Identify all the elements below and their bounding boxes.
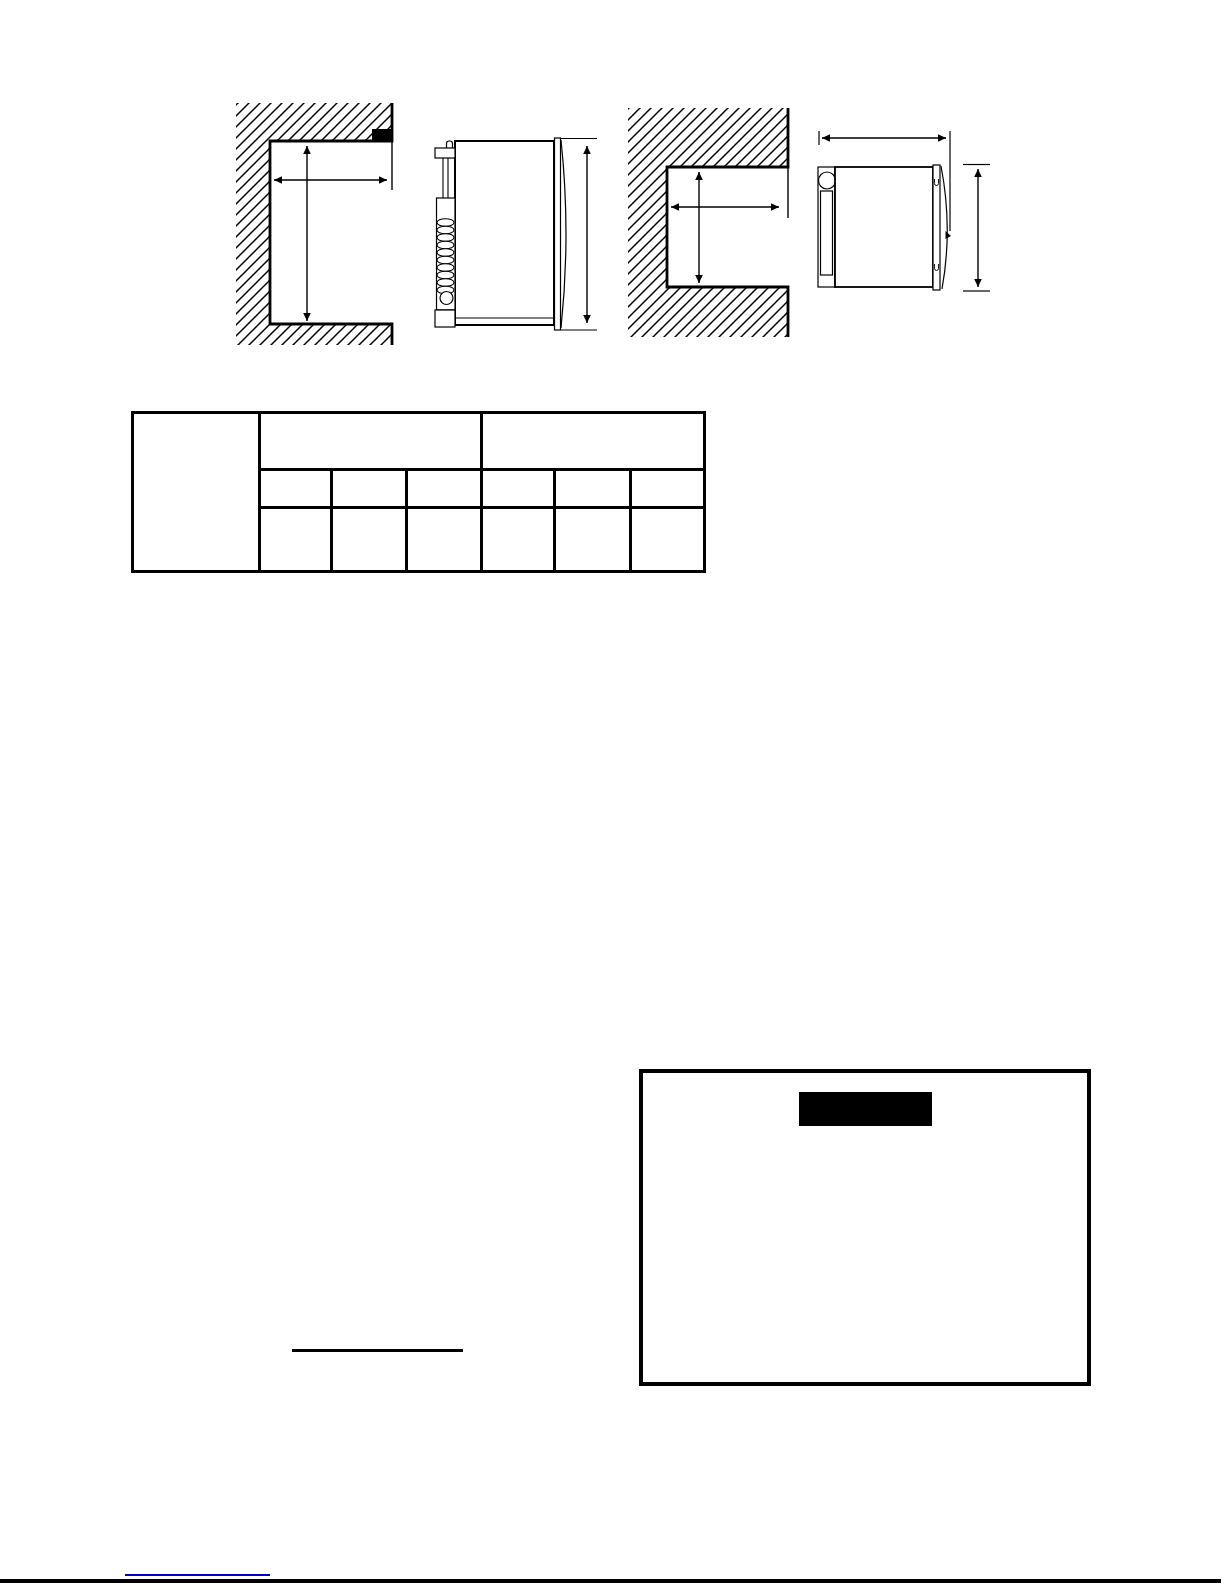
table-column-header — [631, 470, 705, 508]
appliance-body — [455, 141, 554, 325]
table-data-cell — [260, 508, 332, 572]
figure-wall-recess-elevation — [236, 103, 393, 345]
table-column-header — [332, 470, 407, 508]
figure-appliance-top-view — [818, 131, 990, 291]
installation-clearance-figures — [0, 0, 1225, 370]
underlined-phrase-rule — [292, 1349, 463, 1352]
rear-roller — [440, 292, 453, 305]
hinge-barrel — [819, 172, 836, 189]
document-page — [0, 0, 1225, 1585]
table-group-header — [482, 413, 705, 470]
table-column-header — [407, 470, 482, 508]
notice-box — [639, 1069, 1091, 1386]
wall-section-hatch — [628, 108, 788, 337]
door-panel — [933, 165, 940, 290]
table-data-cell — [482, 508, 555, 572]
rear-foot — [435, 310, 455, 327]
table-column-header — [482, 470, 555, 508]
door-curve — [561, 140, 566, 328]
table-data-cell — [631, 508, 705, 572]
table-data-cell — [332, 508, 407, 572]
footer-divider — [0, 1579, 1221, 1583]
table-group-header — [260, 413, 482, 470]
figure-wall-recess-plan — [628, 108, 788, 337]
table-column-header — [555, 470, 631, 508]
clearance-table — [131, 411, 706, 573]
notice-body-text — [657, 1137, 1073, 1372]
door-curve — [941, 166, 947, 289]
appliance-body — [835, 167, 933, 287]
door-panel — [555, 138, 561, 330]
side-channel-slot — [821, 191, 833, 275]
notice-banner — [799, 1092, 932, 1126]
table-data-cell — [407, 508, 482, 572]
footer-link[interactable] — [125, 1565, 270, 1576]
recess-corner-block — [372, 129, 393, 142]
door-latch — [946, 231, 952, 239]
table-data-cell — [555, 508, 631, 572]
table-corner-cell — [133, 413, 260, 572]
wall-section-hatch — [236, 103, 392, 345]
table-column-header — [260, 470, 332, 508]
figure-appliance-side-view — [435, 138, 597, 330]
rear-top-bracket — [435, 148, 455, 158]
